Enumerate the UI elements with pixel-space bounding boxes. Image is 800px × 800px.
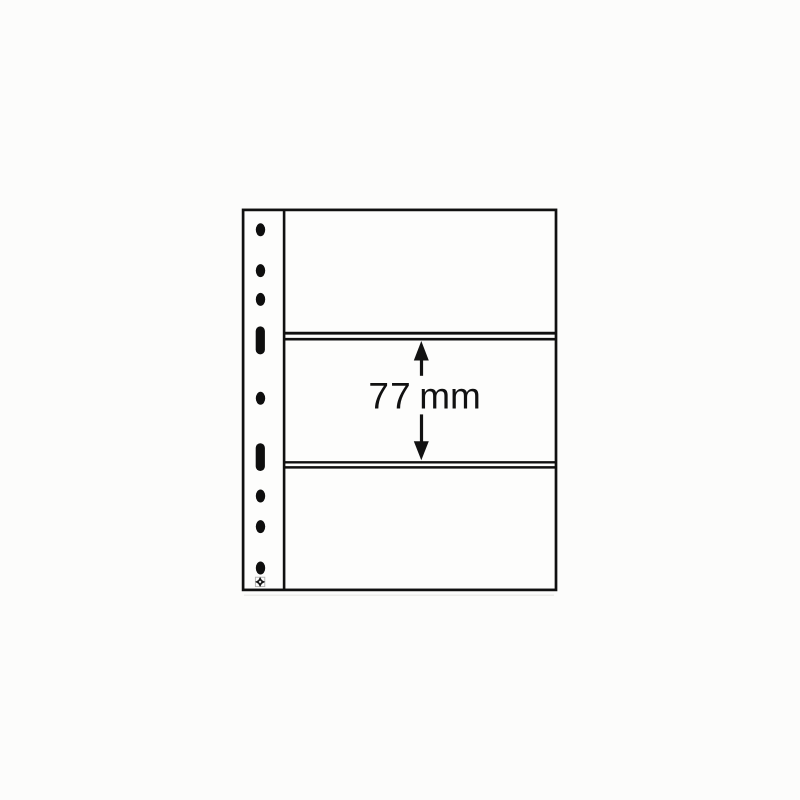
svg-text:mm: mm <box>419 375 481 416</box>
svg-text:77: 77 <box>368 375 412 416</box>
